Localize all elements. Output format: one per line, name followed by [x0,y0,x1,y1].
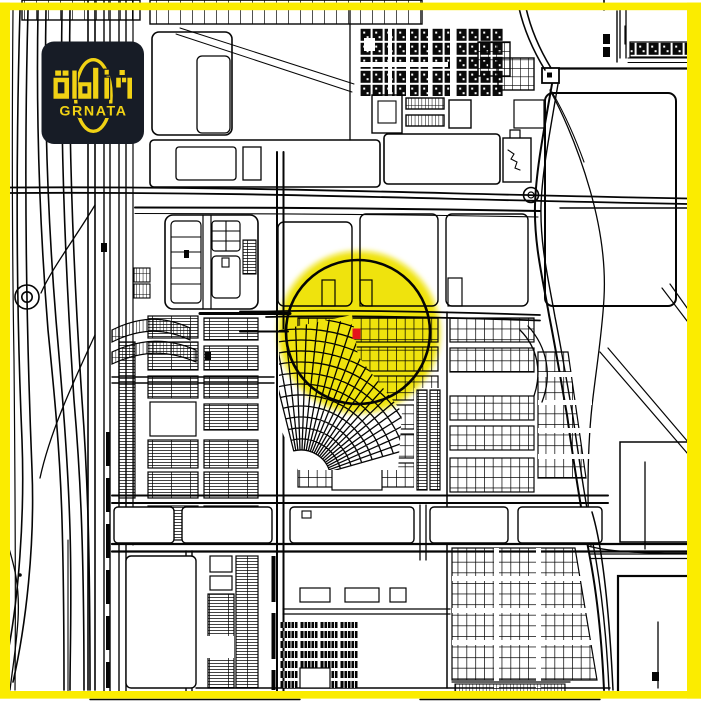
svg-text:GRNATA: GRNATA [59,104,127,120]
